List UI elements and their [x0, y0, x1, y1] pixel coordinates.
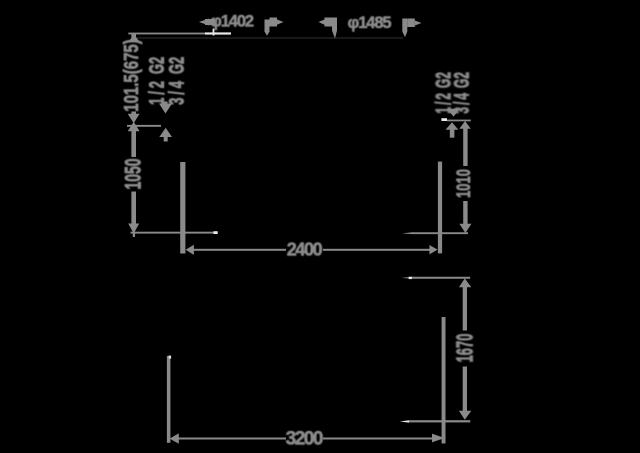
svg-text:φ1402: φ1402: [210, 13, 254, 31]
svg-text:2400: 2400: [287, 240, 323, 260]
svg-text:1010: 1010: [454, 169, 475, 198]
svg-text:G2: G2: [164, 57, 188, 74]
svg-text:3/4: 3/4: [164, 78, 188, 105]
svg-text:1050: 1050: [120, 158, 145, 189]
svg-text:3200: 3200: [286, 429, 323, 450]
svg-text:G2: G2: [449, 72, 474, 88]
svg-text:101.5(675): 101.5(675): [120, 39, 143, 112]
svg-text:φ1485: φ1485: [348, 14, 392, 32]
svg-text:1670: 1670: [451, 334, 477, 363]
